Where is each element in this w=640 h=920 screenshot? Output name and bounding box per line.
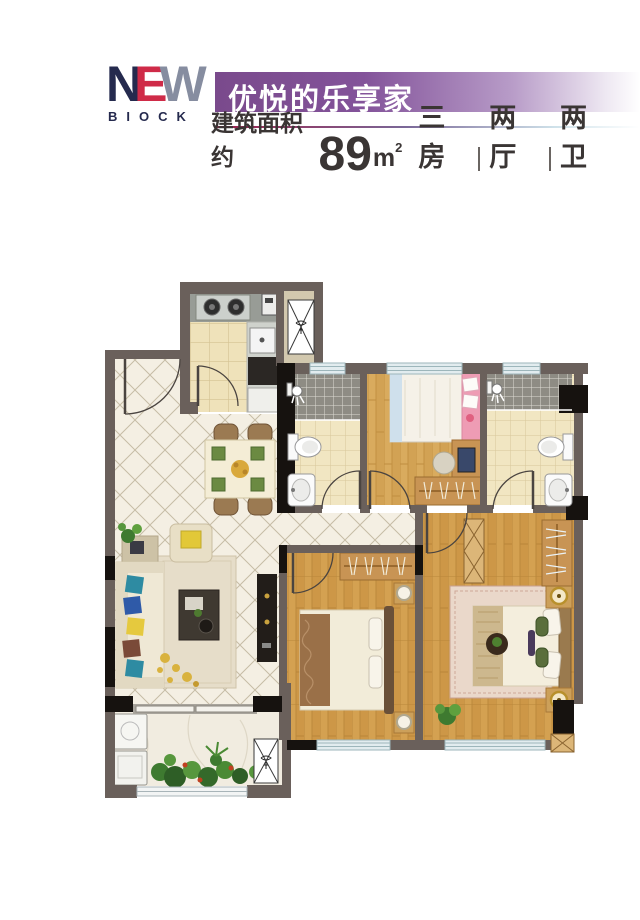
balcony-railing	[137, 787, 247, 796]
dining-chair	[214, 496, 238, 515]
green-pillow	[536, 648, 548, 667]
coffee-table-tray	[185, 597, 203, 610]
shower-head	[292, 386, 302, 396]
kids-pillow	[462, 394, 478, 409]
bedroom2-top-wall	[287, 545, 415, 553]
duct-right-wall	[314, 282, 323, 366]
window	[503, 363, 540, 374]
shower-arm	[287, 383, 292, 396]
coffee-table-plant	[194, 609, 202, 617]
floorplan-brochure: { "header": { "logo_primary": "NEW", "lo…	[0, 0, 640, 920]
kids-pillow	[462, 377, 479, 392]
cabinet-knob	[265, 594, 270, 599]
lamp	[397, 715, 411, 729]
kitchen-right-wall	[276, 282, 284, 366]
kids-bed-foot	[390, 372, 402, 442]
kitchen-left-wall	[180, 282, 190, 414]
entry-top-wall	[105, 350, 185, 359]
hatched-column	[464, 519, 484, 583]
hallway-floor	[282, 513, 415, 545]
kids-chair	[433, 452, 455, 474]
lamp	[397, 586, 411, 600]
dining-chair	[248, 496, 272, 515]
kitchen-top-wall	[180, 282, 284, 294]
kids-bath2-wall	[480, 374, 487, 505]
washing-machine	[113, 714, 147, 749]
window	[317, 740, 390, 750]
table-centerpiece	[231, 460, 249, 478]
cabinet-knob	[265, 620, 270, 625]
shower-head	[492, 384, 502, 394]
bedroom-divider-wall	[415, 505, 423, 740]
bedroom2-headboard	[384, 606, 394, 714]
window	[387, 363, 462, 374]
side-table-item	[130, 541, 144, 554]
sliding-door-leaf	[136, 706, 194, 712]
duct-shaft-top	[288, 300, 314, 354]
kitchen-cabinet	[248, 357, 278, 385]
pillow	[369, 618, 382, 650]
kids-toy	[466, 414, 474, 422]
bath1-shower-floor	[295, 374, 360, 420]
master-headboard	[559, 602, 571, 690]
right-outer-wall	[574, 374, 583, 704]
floor-plan	[0, 0, 640, 920]
pillow	[369, 656, 382, 688]
bed-throw	[300, 614, 330, 706]
kitchen-bottom-jamb	[180, 402, 198, 414]
bed-tray-plant	[492, 637, 502, 647]
armchair-pillow	[181, 531, 201, 548]
sliding-door-leaf	[196, 706, 254, 712]
green-pillow	[536, 617, 548, 636]
duct-shaft-balcony	[254, 739, 278, 783]
fridge	[248, 388, 278, 412]
kids-laptop	[458, 448, 475, 472]
tv-cabinet	[257, 574, 277, 662]
window	[310, 363, 345, 374]
bolster-pillow	[528, 630, 535, 656]
shower-arm	[487, 381, 492, 394]
window	[445, 740, 545, 750]
coffee-table-pot	[199, 619, 213, 633]
kettle	[262, 294, 278, 315]
